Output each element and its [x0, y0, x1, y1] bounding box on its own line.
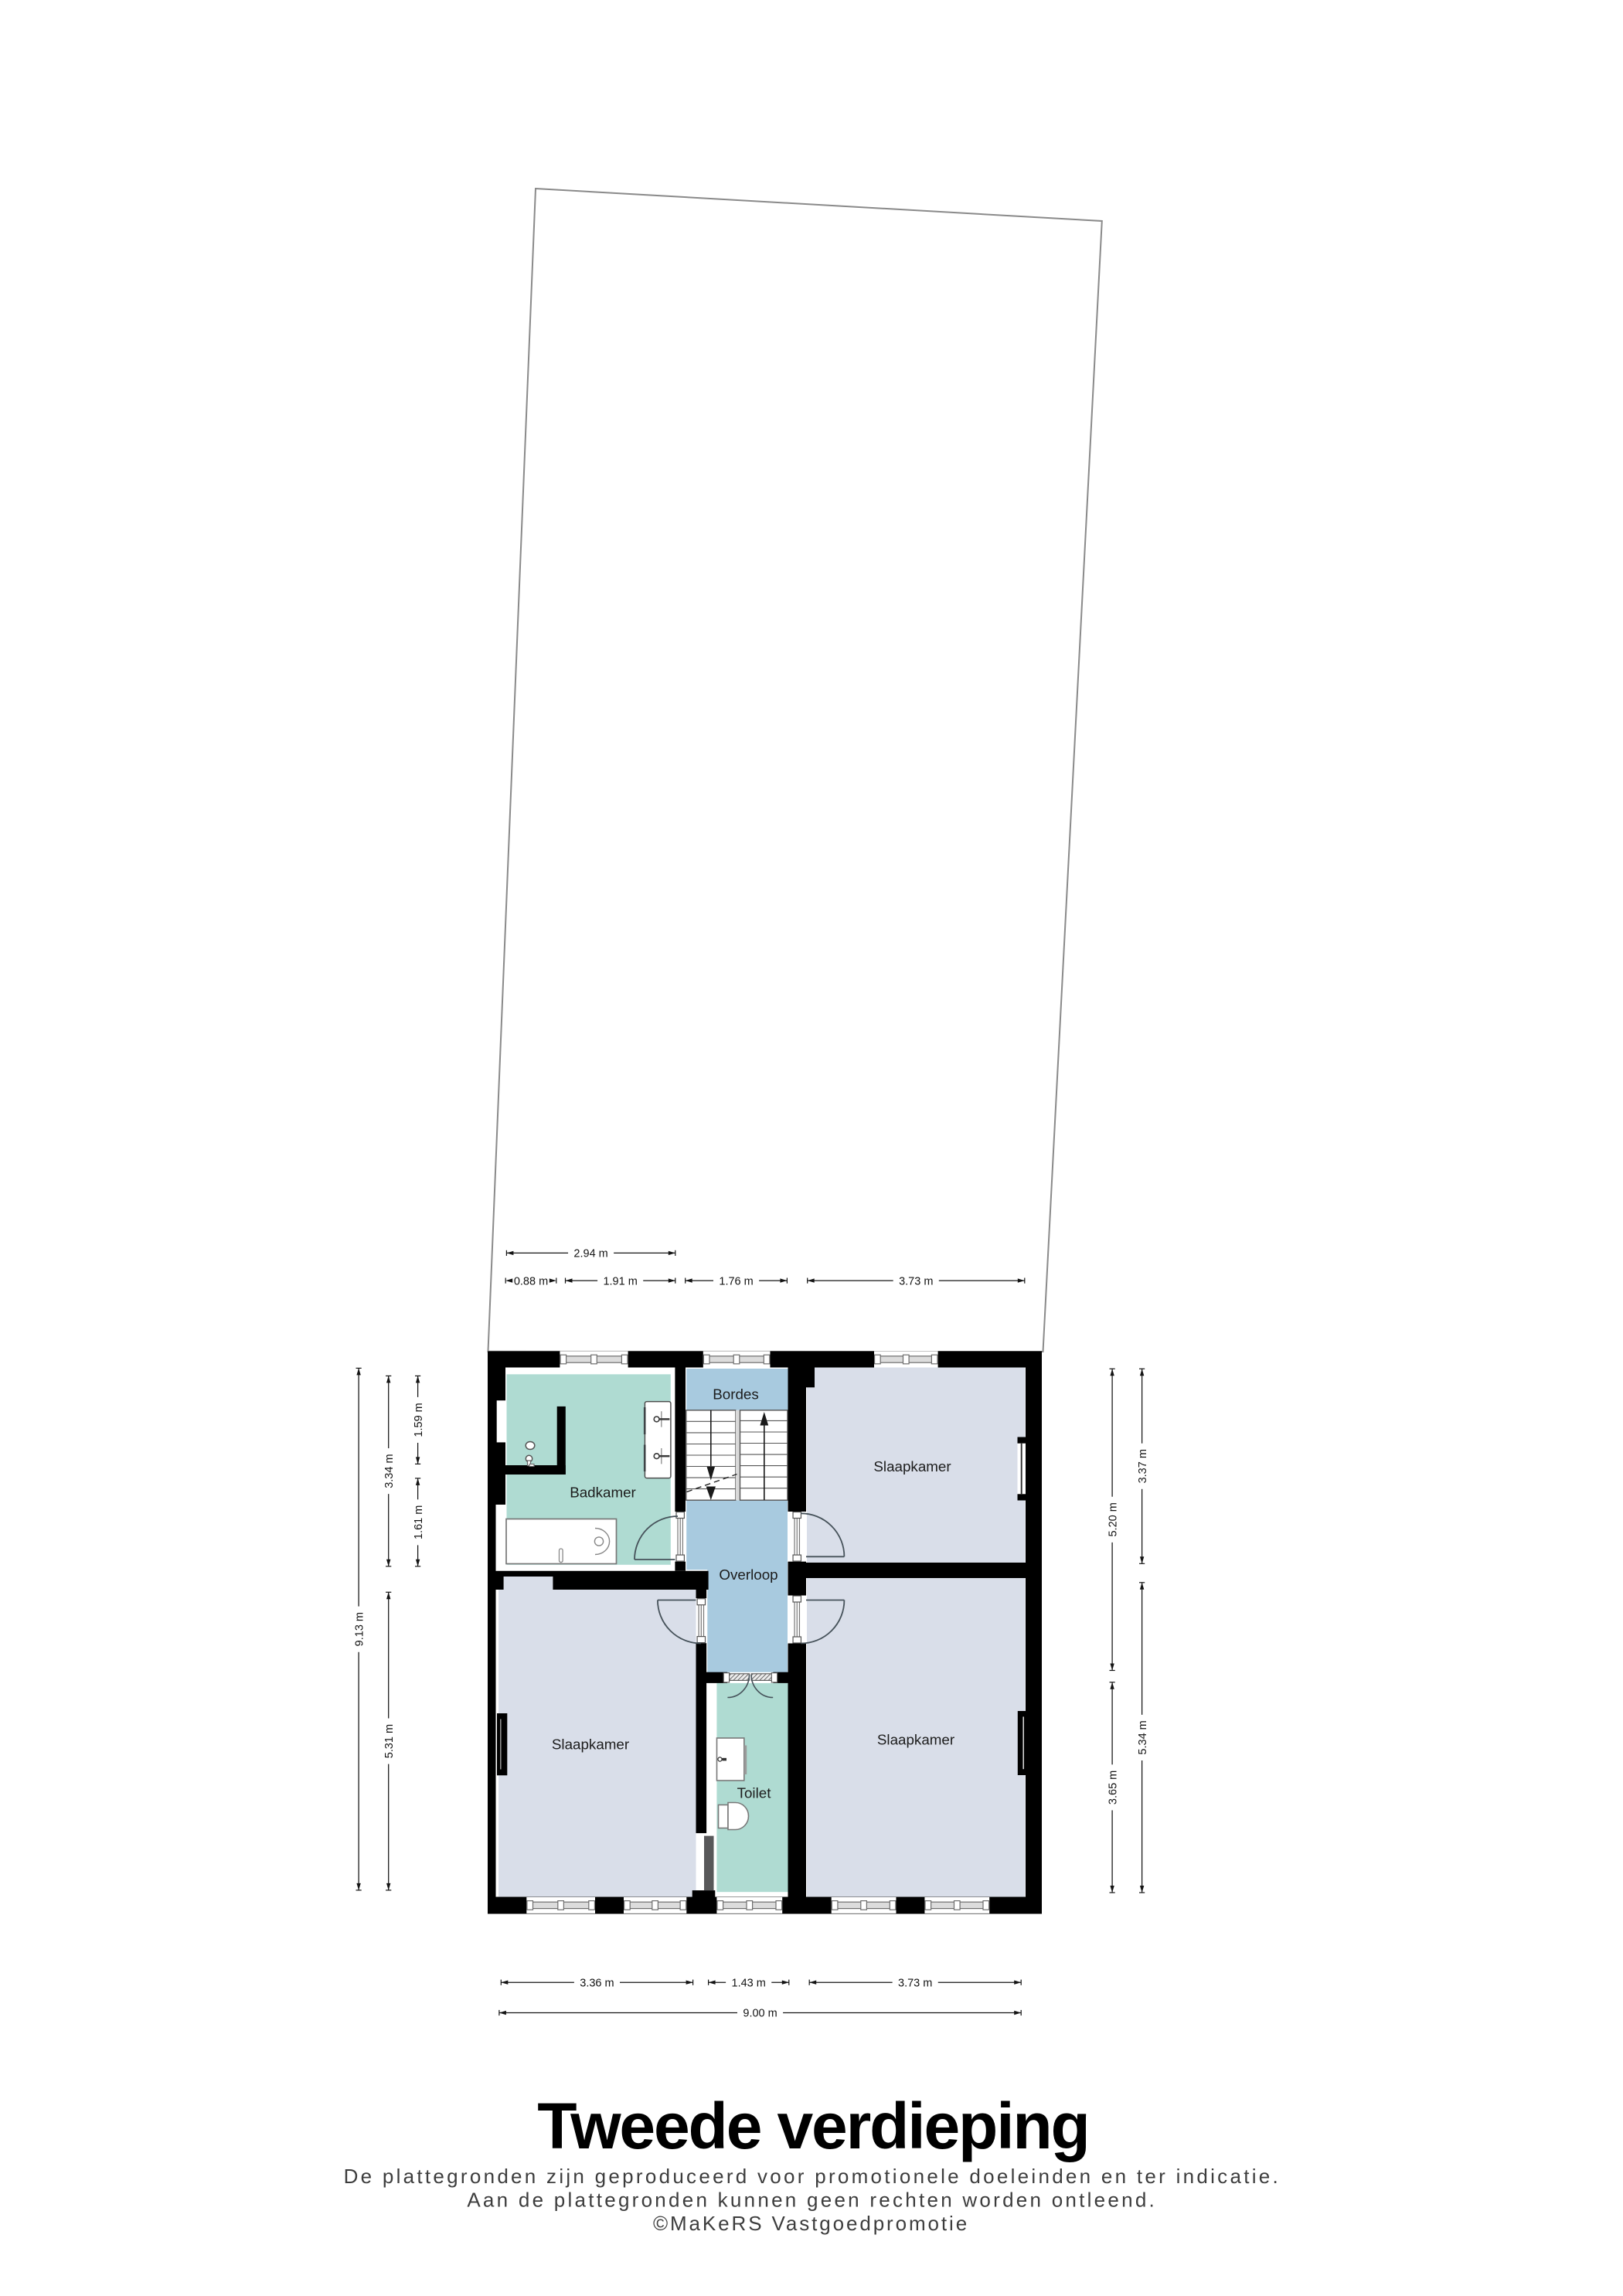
svg-text:3.65 m: 3.65 m [1107, 1770, 1119, 1804]
svg-text:1.76 m: 1.76 m [719, 1275, 753, 1287]
svg-text:1.61 m: 1.61 m [413, 1505, 425, 1539]
svg-text:3.73 m: 3.73 m [898, 1977, 932, 1989]
svg-text:0.88 m: 0.88 m [514, 1275, 548, 1287]
svg-text:Slaapkamer: Slaapkamer [552, 1736, 629, 1752]
svg-text:5.31 m: 5.31 m [383, 1724, 396, 1758]
svg-text:©MaKeRS Vastgoedpromotie: ©MaKeRS Vastgoedpromotie [653, 2212, 969, 2235]
svg-text:2.94 m: 2.94 m [573, 1248, 607, 1260]
svg-text:Overloop: Overloop [719, 1566, 777, 1583]
svg-text:3.73 m: 3.73 m [899, 1275, 933, 1287]
svg-text:De plattegronden zijn geproduc: De plattegronden zijn geproduceerd voor … [344, 2165, 1281, 2188]
svg-text:1.59 m: 1.59 m [413, 1403, 425, 1437]
svg-text:9.13 m: 9.13 m [353, 1612, 366, 1646]
svg-text:Slaapkamer: Slaapkamer [877, 1731, 954, 1747]
svg-text:Aan de plattegronden kunnen ge: Aan de plattegronden kunnen geen rechten… [467, 2189, 1157, 2212]
svg-text:5.20 m: 5.20 m [1107, 1502, 1119, 1536]
svg-text:Tweede verdieping: Tweede verdieping [537, 2090, 1088, 2162]
svg-text:1.91 m: 1.91 m [603, 1275, 637, 1287]
svg-text:Slaapkamer: Slaapkamer [873, 1458, 951, 1475]
svg-text:3.37 m: 3.37 m [1137, 1449, 1149, 1483]
svg-text:5.34 m: 5.34 m [1137, 1720, 1149, 1754]
svg-text:9.00 m: 9.00 m [743, 2008, 777, 2020]
svg-text:Toilet: Toilet [737, 1784, 772, 1801]
svg-text:1.43 m: 1.43 m [732, 1977, 766, 1989]
svg-text:Bordes: Bordes [713, 1386, 759, 1402]
svg-text:3.36 m: 3.36 m [580, 1977, 614, 1989]
svg-text:Badkamer: Badkamer [570, 1484, 636, 1500]
svg-text:3.34 m: 3.34 m [383, 1454, 396, 1488]
